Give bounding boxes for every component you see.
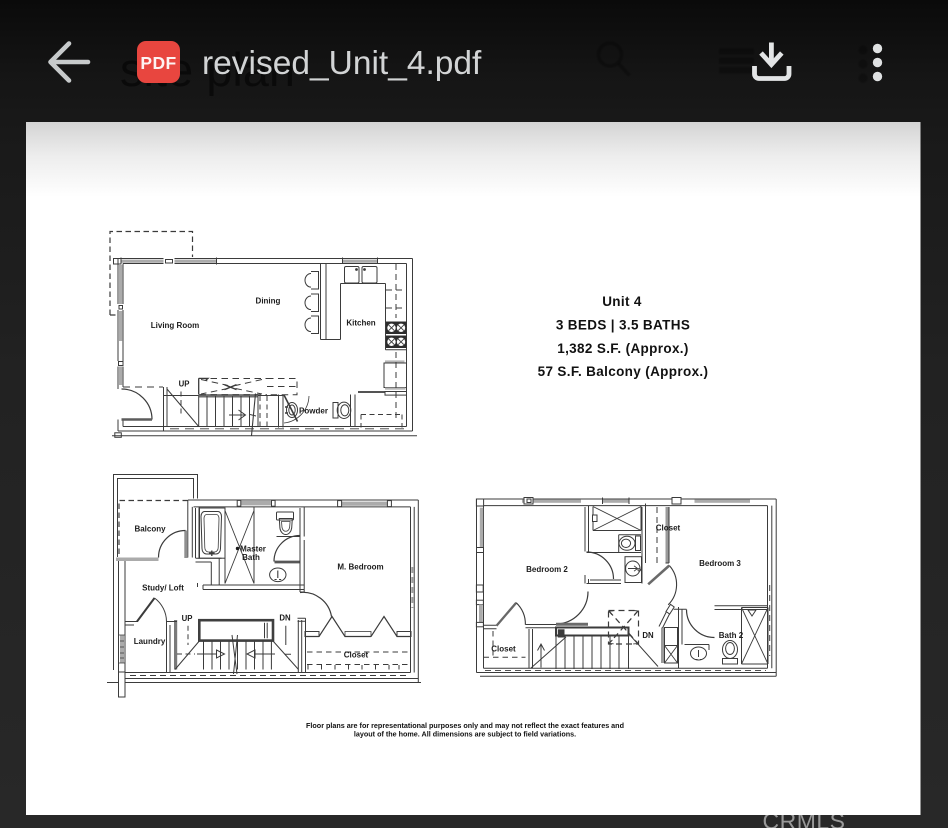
svg-text:Balcony: Balcony	[134, 525, 166, 534]
svg-text:Bath: Bath	[242, 553, 260, 562]
svg-text:Study/ Loft: Study/ Loft	[142, 584, 184, 593]
svg-text:Closet: Closet	[491, 645, 516, 654]
svg-text:Bedroom 3: Bedroom 3	[699, 559, 741, 568]
svg-text:Bedroom 2: Bedroom 2	[526, 565, 568, 574]
svg-text:Bath 2: Bath 2	[719, 631, 744, 640]
svg-text:layout of the home. All dimens: layout of the home. All dimensions are s…	[354, 730, 576, 739]
svg-text:UP: UP	[182, 614, 193, 623]
svg-text:Unit 4: Unit 4	[602, 294, 642, 309]
svg-text:Living Room: Living Room	[151, 321, 199, 330]
svg-text:DN: DN	[642, 631, 654, 640]
svg-text:M. Bedroom: M. Bedroom	[337, 563, 383, 572]
svg-text:PDF: PDF	[140, 53, 176, 73]
svg-text:57 S.F. Balcony (Approx.): 57 S.F. Balcony (Approx.)	[538, 364, 709, 379]
svg-text:Powder: Powder	[299, 407, 328, 416]
svg-text:Laundry: Laundry	[134, 637, 166, 646]
svg-text:Closet: Closet	[344, 651, 369, 660]
svg-text:UP: UP	[179, 380, 190, 389]
svg-text:Closet: Closet	[656, 524, 681, 533]
svg-text:3 BEDS | 3.5 BATHS: 3 BEDS | 3.5 BATHS	[556, 318, 690, 333]
svg-text:Kitchen: Kitchen	[346, 319, 375, 328]
svg-text:Dining: Dining	[256, 297, 281, 306]
svg-text:1,382 S.F. (Approx.): 1,382 S.F. (Approx.)	[557, 341, 689, 356]
svg-text:revised_Unit_4.pdf: revised_Unit_4.pdf	[202, 45, 482, 82]
svg-text:DN: DN	[279, 614, 291, 623]
